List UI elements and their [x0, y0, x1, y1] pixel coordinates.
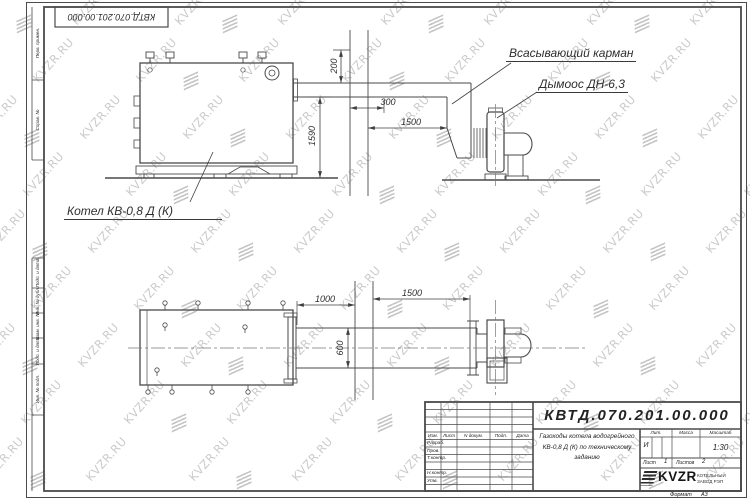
- tb-scale-label: Масштаб: [700, 430, 741, 435]
- company-name-line2: ЗАВОД РЭП: [697, 479, 723, 484]
- tb-row-nkontr: Н.контр.: [427, 471, 447, 476]
- tb-sheet-value: 1: [664, 459, 667, 465]
- side-label-sprav-no: Справ. №: [33, 85, 43, 155]
- tb-row-prov: Пров.: [427, 449, 440, 454]
- side-label-perv-primen: Перв. примен.: [33, 8, 43, 78]
- side-label-inv-podl: Инв. № подл.: [33, 354, 43, 424]
- format-value: А3: [701, 492, 708, 498]
- tb-col-data: Дата: [512, 433, 533, 438]
- dim-1500-lower: 1500: [391, 288, 433, 298]
- dim-1500-upper: 1500: [389, 117, 433, 127]
- flue-duct-and-fan-plan: [128, 300, 585, 395]
- tb-mass-label: Масса: [672, 430, 700, 435]
- tb-lit-value: И: [640, 442, 652, 449]
- dim-300: 300: [372, 97, 404, 107]
- tb-col-list: Лист: [441, 433, 457, 438]
- format-label: Формат: [670, 492, 692, 498]
- tb-col-podp: Подп.: [490, 433, 512, 438]
- dimension-lines-lower: [297, 295, 470, 368]
- company-name-line1: КОТЕЛЬНЫЙ: [697, 473, 726, 478]
- leader-lines: [190, 63, 537, 202]
- tb-sheets-value: 2: [702, 459, 705, 465]
- tb-sheets-label: Листов: [676, 460, 694, 466]
- drawing-sheet: КВТД.070.201.00.000 Перв. примен. Справ.…: [0, 0, 750, 500]
- title-block-description: Газоходы котела водогрейного КВ-0,8 Д (К…: [536, 432, 638, 464]
- tb-row-razrab: Разраб.: [427, 441, 444, 446]
- tb-row-utv: Утв.: [427, 479, 438, 484]
- tb-lit-label: Лит.: [640, 430, 672, 435]
- label-smoke-exhauster: Дымоос ДН-6,3: [536, 77, 628, 93]
- dimension-lines-upper: [306, 50, 447, 178]
- dim-1000: 1000: [304, 294, 346, 304]
- label-suction-pocket: Всасывающий карман: [506, 46, 636, 62]
- title-block-doc-number: КВТД.070.201.00.000: [535, 404, 739, 427]
- tb-row-tkontr: Т.контр.: [427, 456, 446, 461]
- tb-col-izm: Изм.: [425, 433, 441, 438]
- tb-col-doc: N докум.: [457, 433, 490, 438]
- tb-sheet-label: Лист: [643, 460, 656, 466]
- tb-scale-value: 1:30: [700, 443, 741, 452]
- label-boiler: Котел КВ-0,8 Д (К): [64, 204, 222, 220]
- dim-600: 600: [335, 333, 345, 363]
- dim-1590: 1590: [307, 119, 317, 153]
- flue-duct-and-fan-front: [293, 79, 532, 186]
- kvzr-logo-text: KVZR: [658, 469, 697, 484]
- top-doc-number: КВТД.070.201.00.000: [55, 8, 168, 26]
- dim-200: 200: [329, 51, 339, 81]
